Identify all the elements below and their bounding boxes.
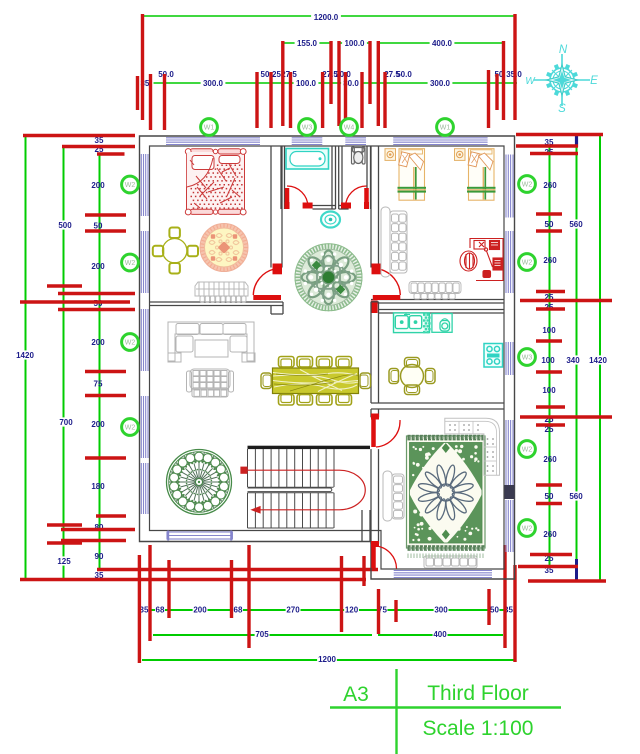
svg-text:W2: W2 <box>125 425 136 432</box>
svg-text:A3: A3 <box>343 683 369 706</box>
svg-text:340: 340 <box>566 356 580 365</box>
svg-text:E: E <box>590 75 598 87</box>
svg-text:155.0: 155.0 <box>297 39 318 48</box>
svg-text:500: 500 <box>58 221 72 230</box>
svg-text:1420: 1420 <box>589 356 607 365</box>
svg-text:300.0: 300.0 <box>430 79 451 88</box>
svg-text:90: 90 <box>95 552 104 561</box>
svg-text:560: 560 <box>569 220 583 229</box>
svg-text:260: 260 <box>543 256 557 265</box>
svg-text:100: 100 <box>542 386 556 395</box>
svg-text:W: W <box>525 76 536 87</box>
svg-text:W3: W3 <box>522 355 533 362</box>
svg-text:50: 50 <box>490 606 499 615</box>
svg-text:W2: W2 <box>522 526 533 533</box>
svg-text:W4: W4 <box>344 125 355 132</box>
svg-text:Scale 1:100: Scale 1:100 <box>423 717 534 740</box>
svg-text:200: 200 <box>91 181 105 190</box>
svg-text:260: 260 <box>543 530 557 539</box>
svg-text:100: 100 <box>542 326 556 335</box>
svg-text:50: 50 <box>261 70 270 79</box>
svg-text:W3: W3 <box>302 125 313 132</box>
svg-text:100: 100 <box>541 356 555 365</box>
svg-text:68: 68 <box>156 606 165 615</box>
svg-text:75: 75 <box>94 380 103 389</box>
svg-text:400.0: 400.0 <box>432 39 453 48</box>
svg-text:50: 50 <box>545 220 554 229</box>
svg-text:50.0: 50.0 <box>158 70 174 79</box>
svg-text:260: 260 <box>543 455 557 464</box>
svg-text:200: 200 <box>91 338 105 347</box>
svg-text:68: 68 <box>234 606 243 615</box>
svg-text:W2: W2 <box>522 260 533 267</box>
svg-text:1200.0: 1200.0 <box>314 13 339 22</box>
svg-text:W2: W2 <box>522 447 533 454</box>
svg-text:300.0: 300.0 <box>203 79 224 88</box>
svg-text:50: 50 <box>94 222 103 231</box>
svg-text:270: 270 <box>286 606 300 615</box>
svg-text:W2: W2 <box>522 182 533 189</box>
svg-text:180: 180 <box>91 482 105 491</box>
svg-text:W1: W1 <box>204 125 215 132</box>
svg-text:300: 300 <box>434 606 448 615</box>
svg-text:Third Floor: Third Floor <box>427 682 529 705</box>
svg-text:100.0: 100.0 <box>296 79 317 88</box>
svg-text:260: 260 <box>543 181 557 190</box>
svg-text:200: 200 <box>91 262 105 271</box>
svg-text:35: 35 <box>95 136 104 145</box>
svg-text:100.0: 100.0 <box>344 39 365 48</box>
svg-text:1420: 1420 <box>16 351 34 360</box>
svg-text:400: 400 <box>433 630 447 639</box>
svg-text:W2: W2 <box>125 260 136 267</box>
svg-text:50: 50 <box>545 492 554 501</box>
svg-text:200: 200 <box>91 420 105 429</box>
svg-text:S: S <box>558 103 566 115</box>
svg-text:N: N <box>559 44 568 56</box>
svg-text:W2: W2 <box>125 182 136 189</box>
svg-text:1200: 1200 <box>318 655 336 664</box>
svg-text:200: 200 <box>193 606 207 615</box>
svg-text:705: 705 <box>255 630 269 639</box>
svg-text:125: 125 <box>57 557 71 566</box>
svg-text:700: 700 <box>59 418 73 427</box>
svg-text:120: 120 <box>345 606 359 615</box>
svg-text:25: 25 <box>272 70 281 79</box>
svg-text:50.0: 50.0 <box>396 70 412 79</box>
svg-text:W2: W2 <box>125 340 136 347</box>
svg-text:W1: W1 <box>440 125 451 132</box>
svg-text:560: 560 <box>569 492 583 501</box>
